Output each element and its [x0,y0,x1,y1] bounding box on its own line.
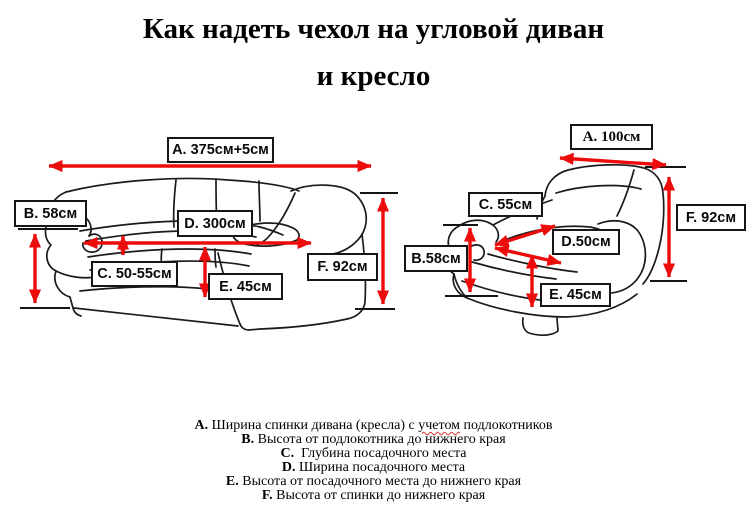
legend-item-f: F. Высота от спинки до нижнего края [0,489,747,503]
armchair-label-b: B.58см [404,245,468,272]
legend-item-a: A. Ширина спинки дивана (кресла) с учето… [0,419,747,433]
sofa-label-c: C. 50-55см [91,261,178,287]
instruction-diagram-page: Как надеть чехол на угловой диван и крес… [0,0,747,512]
measurement-legend: A. Ширина спинки дивана (кресла) с учето… [0,419,747,503]
legend-item-e: E. Высота от посадочного места до нижнег… [0,475,747,489]
armchair-label-d: D.50см [552,229,620,255]
armchair-label-c: C. 55см [468,192,543,217]
legend-item-d: D. Ширина посадочного места [0,461,747,475]
armchair-dim-arrow-c [495,226,555,245]
spellcheck-underlined-word: учетом [418,418,460,433]
sofa-label-a: A. 375см+5см [167,137,274,163]
legend-item-c: C. Глубина посадочного места [0,447,747,461]
sofa-label-e: E. 45см [208,273,283,300]
sofa-label-d: D. 300см [177,210,253,237]
armchair-label-e: E. 45см [540,283,611,307]
armchair-label-a: A. 100см [570,124,653,150]
sofa-label-f: F. 92см [307,253,378,281]
sofa-label-b: B. 58см [14,200,87,227]
legend-item-b: B. Высота от подлокотника до нижнего кра… [0,433,747,447]
armchair-label-f: F. 92см [676,204,746,231]
